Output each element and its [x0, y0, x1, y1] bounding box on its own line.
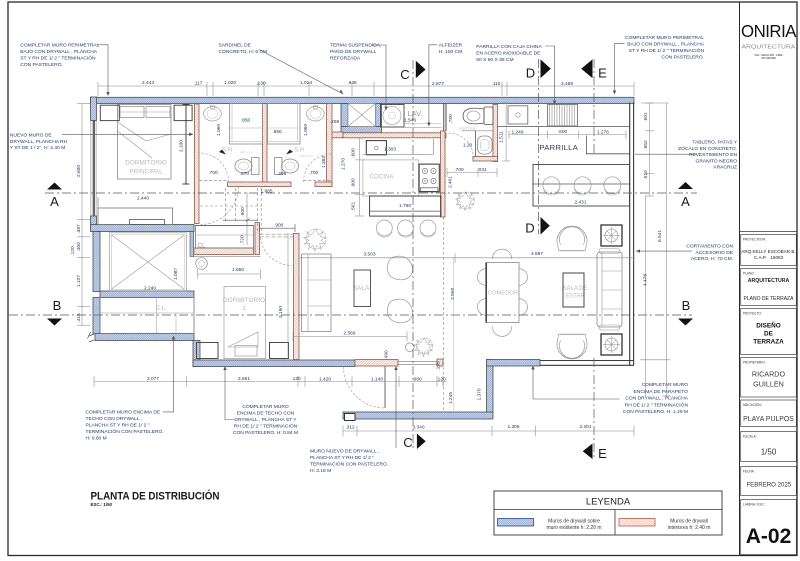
svg-text:PLANCHA ST Y RH DE 1/ 2 ": PLANCHA ST Y RH DE 1/ 2 " — [86, 423, 150, 429]
svg-text:.295: .295 — [277, 171, 287, 177]
svg-text:975 308 892: 975 308 892 — [761, 56, 776, 60]
svg-text:.031: .031 — [477, 167, 487, 173]
svg-text:PLAYA PULPOS: PLAYA PULPOS — [743, 416, 794, 423]
svg-text:.510: .510 — [643, 170, 649, 180]
svg-text:RH DE 1/ 2 " TERMINACIÓN: RH DE 1/ 2 " TERMINACIÓN — [625, 401, 689, 408]
svg-text:COMPLETAR MURO PERIMETRAL: COMPLETAR MURO PERIMETRAL — [625, 35, 704, 41]
svg-text:ST Y RH DE 1/ 2 " TERMINACIÓN: ST Y RH DE 1/ 2 " TERMINACIÓN — [629, 47, 705, 54]
svg-text:ST Y RH DE 1/ 2 " TERMINACIÓN: ST Y RH DE 1/ 2 " TERMINACIÓN — [20, 55, 96, 62]
svg-text:TECHO CON DRYWALL ,: TECHO CON DRYWALL , — [86, 416, 143, 422]
svg-text:3.503: 3.503 — [363, 252, 375, 258]
svg-text:3.488: 3.488 — [561, 81, 573, 87]
svg-text:2.600: 2.600 — [76, 165, 82, 177]
svg-text:1.511: 1.511 — [499, 131, 505, 143]
svg-text:1.060: 1.060 — [216, 124, 222, 136]
svg-text:.130: .130 — [256, 81, 266, 87]
svg-text:PROYECTO:: PROYECTO: — [743, 312, 762, 316]
svg-text:NPT +2.6: NPT +2.6 — [300, 154, 313, 158]
svg-text:4.887: 4.887 — [531, 251, 543, 257]
svg-text:MURO NUEVO DE DRYWALL ,: MURO NUEVO DE DRYWALL , — [310, 449, 379, 455]
svg-text:1.303: 1.303 — [384, 147, 396, 153]
svg-text:.700: .700 — [309, 170, 319, 176]
svg-text:ENCIMA DE TECHO CON: ENCIMA DE TECHO CON — [237, 411, 295, 417]
svg-text:COMPLETAR MURO: COMPLETAR MURO — [642, 382, 689, 388]
svg-text:LEYENDA: LEYENDA — [586, 497, 631, 508]
svg-text:DRYWALL, PLANCHA RH: DRYWALL, PLANCHA RH — [10, 139, 68, 145]
svg-text:PLANO:: PLANO: — [743, 272, 755, 276]
svg-text:H: 100 CM: H: 100 CM — [439, 49, 462, 55]
svg-text:1.420: 1.420 — [319, 377, 331, 383]
svg-text:TERMINACIÓN CON PASTELERO.: TERMINACIÓN CON PASTELERO. — [310, 461, 388, 468]
svg-text:RH DE 1/ 2 " TERMINACIÓN: RH DE 1/ 2 " TERMINACIÓN — [234, 423, 298, 430]
svg-text:C.L.: C.L. — [156, 306, 167, 312]
svg-text:ALFEIZER: ALFEIZER — [439, 43, 463, 49]
svg-text:1.060: 1.060 — [303, 124, 309, 136]
svg-text:FEBRERO 2025: FEBRERO 2025 — [746, 482, 791, 489]
svg-text:CON PASTELERO. H: 0.84 M: CON PASTELERO. H: 0.84 M — [233, 430, 298, 436]
svg-text:NPT +2.6: NPT +2.6 — [240, 151, 253, 155]
svg-text:1.20: 1.20 — [463, 143, 473, 149]
svg-text:UBICACIÓN:: UBICACIÓN: — [743, 402, 762, 407]
svg-text:ENCIMA DE PARAPETO: ENCIMA DE PARAPETO — [634, 389, 689, 395]
svg-text:E: E — [598, 66, 607, 81]
svg-text:LAV.: LAV. — [408, 109, 423, 118]
svg-text:ONIRIA: ONIRIA — [741, 21, 797, 41]
svg-text:CL: CL — [198, 243, 206, 250]
svg-text:CON PASTELERO. H: 1.29 M: CON PASTELERO. H: 1.29 M — [623, 409, 688, 415]
svg-text:.460: .460 — [76, 242, 82, 252]
svg-text:ARQ.KELLY ESCOBAR B.: ARQ.KELLY ESCOBAR B. — [741, 249, 795, 254]
svg-text:.900: .900 — [274, 223, 284, 229]
svg-text:D: D — [525, 221, 534, 236]
svg-text:A: A — [681, 194, 690, 209]
svg-text:H: 0.60 M: H: 0.60 M — [86, 436, 107, 442]
svg-text:.120: .120 — [291, 376, 301, 382]
svg-text:PAÑO DE DRYWALL: PAÑO DE DRYWALL — [330, 48, 377, 55]
svg-text:.120: .120 — [70, 246, 76, 256]
svg-text:CON PASTELERO.: CON PASTELERO. — [661, 55, 704, 61]
svg-text:VISITAS: VISITAS — [459, 126, 476, 131]
svg-text:.700: .700 — [208, 170, 218, 176]
svg-text:.269: .269 — [330, 119, 340, 125]
svg-text:ZÓCALO EN CONCRETO.: ZÓCALO EN CONCRETO. — [678, 145, 737, 152]
svg-text:2.431: 2.431 — [574, 200, 586, 206]
svg-text:ACCESORIO DE: ACCESORIO DE — [695, 250, 733, 256]
svg-text:Y ST DE 1 / 2", H: 2.40 M: Y ST DE 1 / 2", H: 2.40 M — [10, 145, 65, 151]
svg-text:2.100: 2.100 — [179, 140, 185, 152]
svg-text:.600: .600 — [351, 148, 357, 158]
svg-text:DORMITORIO: DORMITORIO — [125, 160, 166, 167]
svg-text:DISEÑO: DISEÑO — [756, 321, 781, 330]
svg-text:S.H: S.H — [294, 148, 304, 154]
svg-text:COMPLETAR MURO ENCIMA DE: COMPLETAR MURO ENCIMA DE — [86, 410, 161, 416]
svg-text:PARRILLA CON CAJA CHINA: PARRILLA CON CAJA CHINA — [476, 44, 542, 50]
svg-text:GUILLEN: GUILLEN — [753, 380, 784, 389]
svg-text:CORTAVIENTO CON: CORTAVIENTO CON — [686, 244, 733, 250]
svg-text:C.A.P. 16083: C.A.P. 16083 — [754, 255, 784, 260]
svg-text:.415: .415 — [76, 313, 82, 323]
svg-text:1.790: 1.790 — [399, 203, 411, 209]
svg-text:.120: .120 — [436, 377, 446, 383]
svg-text:TERMA SUSPENDIDA,: TERMA SUSPENDIDA, — [330, 43, 381, 49]
svg-text:ACERO, H: 70 CM.: ACERO, H: 70 CM. — [691, 256, 733, 262]
svg-text:.720: .720 — [240, 235, 246, 245]
svg-text:C: C — [403, 435, 412, 450]
svg-text:A: A — [50, 194, 59, 209]
svg-text:2.201: 2.201 — [579, 424, 591, 430]
svg-text:3.568: 3.568 — [450, 288, 456, 300]
svg-text:1.370: 1.370 — [477, 388, 483, 400]
svg-text:60 X 60 X 38 CM: 60 X 60 X 38 CM — [476, 57, 513, 63]
svg-text:1.245: 1.245 — [448, 392, 454, 404]
svg-text:4.478: 4.478 — [643, 274, 649, 286]
svg-text:DRYWALL , PLANCHA ST Y: DRYWALL , PLANCHA ST Y — [234, 417, 297, 423]
svg-text:B: B — [682, 298, 691, 313]
svg-text:Muros de drywall: Muros de drywall — [670, 519, 708, 525]
svg-text:ARQUITECTURA: ARQUITECTURA — [748, 278, 790, 284]
svg-text:muro existente h: 2.20 m: muro existente h: 2.20 m — [546, 525, 601, 531]
svg-text:COMPLETAR MURO: COMPLETAR MURO — [242, 404, 289, 410]
svg-text:C: C — [400, 67, 409, 82]
svg-text:BAJO CON DRYWALL , PLANCHA: BAJO CON DRYWALL , PLANCHA — [20, 49, 97, 55]
svg-text:.750: .750 — [448, 114, 454, 124]
svg-text:COCINA: COCINA — [369, 174, 394, 181]
svg-text:TERMINACIÓN CON PASTELERO.: TERMINACIÓN CON PASTELERO. — [86, 428, 164, 435]
svg-text:1.140: 1.140 — [371, 377, 383, 383]
svg-text:.850: .850 — [272, 129, 282, 135]
svg-text:1.546: 1.546 — [404, 118, 416, 124]
svg-text:1.305: 1.305 — [507, 424, 519, 430]
svg-text:CON DRYWALL , PLANCHA: CON DRYWALL , PLANCHA — [625, 396, 688, 402]
svg-text:.117: .117 — [194, 81, 203, 87]
svg-text:PLANTA DE DISTRIBUCIÓN: PLANTA DE DISTRIBUCIÓN — [91, 490, 220, 503]
svg-text:EN ACERO INOXIDABLE DE: EN ACERO INOXIDABLE DE — [476, 51, 541, 57]
svg-text:6.541: 6.541 — [657, 230, 663, 242]
svg-text:DORMITORIO: DORMITORIO — [223, 297, 265, 304]
svg-text:ESTAR: ESTAR — [565, 294, 585, 300]
svg-text:ESC.: 1/50: ESC.: 1/50 — [91, 502, 113, 507]
svg-text:PROPIETARIO:: PROPIETARIO: — [743, 361, 766, 365]
svg-text:ARACRUZ: ARACRUZ — [713, 165, 737, 171]
svg-text:1.087: 1.087 — [173, 268, 179, 280]
svg-text:ARQUITECTURA: ARQUITECTURA — [742, 45, 796, 51]
svg-text:2.440: 2.440 — [137, 196, 149, 202]
svg-text:.601: .601 — [643, 112, 649, 122]
svg-text:COMEDOR: COMEDOR — [488, 291, 518, 297]
svg-text:.948: .948 — [347, 80, 357, 86]
svg-text:2.877: 2.877 — [432, 81, 444, 87]
svg-text:NUEVO MURO DE: NUEVO MURO DE — [10, 133, 53, 139]
svg-text:.387: .387 — [76, 224, 82, 234]
svg-text:.870: .870 — [240, 171, 250, 177]
svg-text:2.077: 2.077 — [147, 376, 159, 382]
svg-text:ESCALA:: ESCALA: — [743, 435, 757, 439]
svg-text:RICARDO: RICARDO — [752, 370, 786, 379]
svg-text:1/50: 1/50 — [761, 448, 777, 457]
svg-text:3.190: 3.190 — [278, 306, 284, 318]
svg-text:COMPLETAR MURO PERIMETRAL: COMPLETAR MURO PERIMETRAL — [20, 43, 99, 49]
svg-text:SALA: SALA — [353, 285, 370, 292]
svg-text:FECHA:: FECHA: — [743, 470, 755, 474]
svg-text:interiores h: 2.40 m: interiores h: 2.40 m — [668, 525, 711, 531]
svg-text:.110: .110 — [492, 81, 501, 87]
svg-text:CON PASTELERO.: CON PASTELERO. — [20, 62, 63, 68]
svg-text:.195: .195 — [436, 361, 442, 371]
svg-text:PRINCIPAL: PRINCIPAL — [129, 169, 163, 176]
svg-text:2.443: 2.443 — [142, 80, 154, 86]
svg-text:2.551: 2.551 — [238, 376, 250, 382]
svg-text:.900: .900 — [240, 207, 246, 217]
svg-text:.850: .850 — [241, 118, 251, 124]
svg-text:2.401: 2.401 — [448, 176, 454, 188]
svg-text:REFORZADA: REFORZADA — [330, 56, 361, 62]
svg-text:1.270: 1.270 — [341, 158, 347, 170]
svg-text:TERRAZA: TERRAZA — [753, 339, 784, 346]
svg-text:1.014: 1.014 — [300, 80, 312, 86]
svg-text:SARDINEL DE: SARDINEL DE — [219, 43, 252, 49]
svg-text:TABLERO, PATAS Y: TABLERO, PATAS Y — [692, 140, 737, 146]
svg-text:1: 1 — [242, 305, 246, 312]
svg-text:2.569: 2.569 — [343, 331, 355, 337]
svg-text:LAMINA / ESC.:: LAMINA / ESC.: — [743, 503, 766, 507]
svg-text:H: 3.18 M: H: 3.18 M — [310, 468, 331, 474]
svg-text:DE: DE — [764, 331, 774, 338]
svg-text:BAJO CON DRYWALL , PLANCHA: BAJO CON DRYWALL , PLANCHA — [627, 42, 704, 48]
svg-text:.561: .561 — [351, 202, 357, 212]
svg-text:GRANITO NEGRO: GRANITO NEGRO — [696, 158, 738, 164]
svg-text:Muros de drywall sobre: Muros de drywall sobre — [548, 519, 600, 525]
svg-text:1.885: 1.885 — [260, 189, 272, 195]
svg-text:PLANCHA ST Y RH DE 1/ 2 ": PLANCHA ST Y RH DE 1/ 2 " — [310, 455, 374, 461]
svg-text:.952: .952 — [643, 140, 649, 150]
svg-text:3.340: 3.340 — [412, 425, 424, 431]
svg-text:A-02: A-02 — [746, 525, 792, 548]
svg-text:PLANO DE TERRAZA: PLANO DE TERRAZA — [744, 296, 795, 302]
svg-text:E: E — [598, 446, 607, 461]
svg-text:PARRILLA: PARRILLA — [540, 143, 579, 152]
svg-text:2.240: 2.240 — [144, 286, 156, 292]
svg-text:1.107: 1.107 — [76, 275, 82, 287]
svg-text:D: D — [526, 66, 535, 81]
svg-text:.600: .600 — [558, 129, 568, 135]
svg-text:B: B — [53, 298, 62, 313]
svg-text:PROYECTISTA:: PROYECTISTA: — [743, 238, 766, 242]
svg-text:1.650: 1.650 — [232, 267, 244, 273]
svg-text:.900: .900 — [351, 178, 357, 188]
svg-text:.080: .080 — [412, 377, 422, 383]
svg-text:.490: .490 — [384, 350, 390, 360]
svg-text:.700: .700 — [454, 167, 464, 173]
svg-text:.312: .312 — [345, 425, 355, 431]
svg-text:1.020: 1.020 — [224, 80, 236, 86]
svg-text:1.383: 1.383 — [321, 156, 327, 168]
svg-text:REVESTIMIENTO EN: REVESTIMIENTO EN — [689, 152, 737, 158]
